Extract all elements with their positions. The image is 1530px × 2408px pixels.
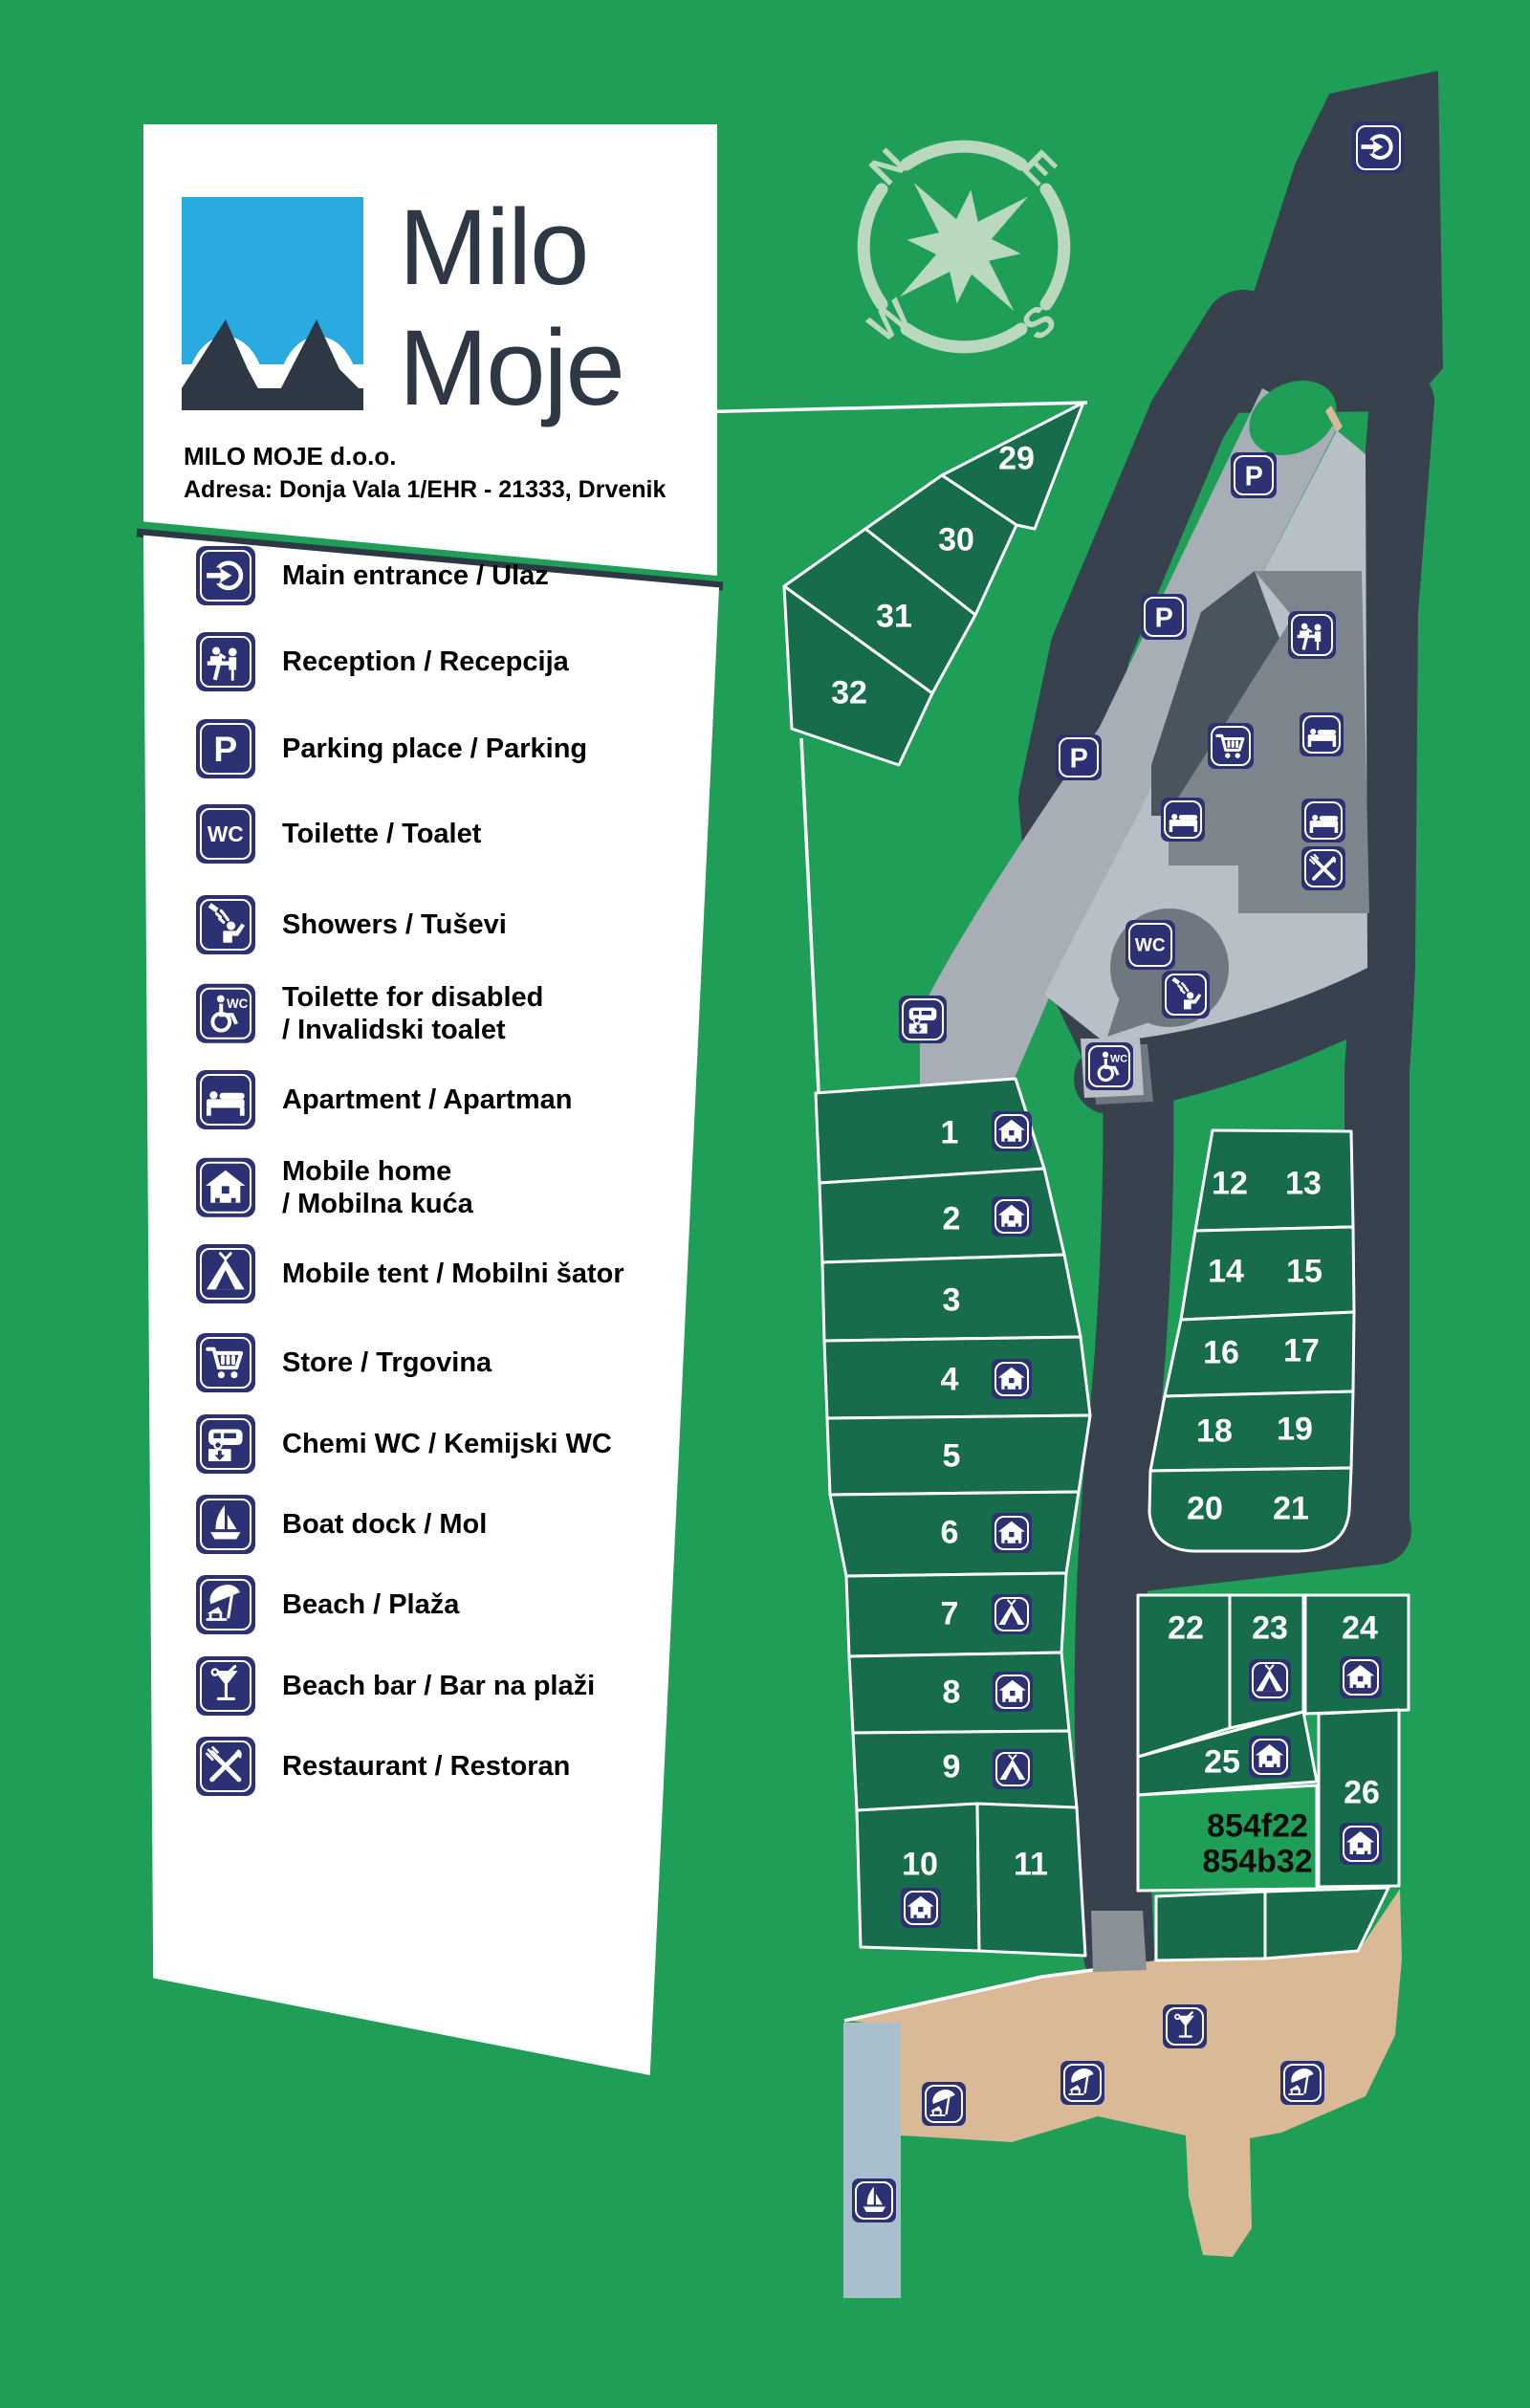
bed-icon <box>1300 712 1344 756</box>
legend-item: Chemi WC / Kemijski WC <box>196 1414 655 1474</box>
plot-label: 17 <box>1283 1333 1320 1370</box>
disabled-wc-icon <box>196 984 255 1043</box>
umbrella-icon <box>1280 2061 1324 2105</box>
plot-label: 18 <box>1196 1413 1233 1451</box>
cocktail-icon <box>1163 2004 1207 2048</box>
legend-item: Boat dock / Mol <box>196 1495 655 1554</box>
plot-label: 5 <box>943 1438 961 1476</box>
shower-icon <box>196 895 255 954</box>
umbrella-icon <box>922 2082 966 2126</box>
plot-label: 22 <box>1168 1610 1204 1648</box>
plot-label: 32 <box>831 675 867 712</box>
legend-item-label: Beach / Plaža <box>282 1588 459 1621</box>
bed-icon <box>1301 799 1345 843</box>
legend-item-label: Toilette for disabled / Invalidski toale… <box>282 981 543 1046</box>
home-icon <box>992 1196 1032 1237</box>
umbrella-icon <box>196 1575 255 1634</box>
boat-pier <box>843 2023 901 2298</box>
legend-item: Reception / Recepcija <box>196 632 655 691</box>
plot-label: 8 <box>943 1675 961 1712</box>
legend-item-label: Parking place / Parking <box>282 733 587 765</box>
reception-icon <box>196 632 255 691</box>
restaurant-icon <box>196 1737 255 1796</box>
plot-label: 3 <box>943 1282 961 1320</box>
plot-label: 20 <box>1187 1491 1223 1528</box>
legend-item-label: Restaurant / Restoran <box>282 1750 570 1783</box>
legend-item-label: Toilette / Toalet <box>282 818 481 850</box>
logo-wordmark: Milo Moje <box>399 187 623 428</box>
home-icon <box>992 1513 1032 1553</box>
plot-label: 31 <box>876 599 912 636</box>
plot-label: 4 <box>941 1362 959 1399</box>
legend-item-label: Chemi WC / Kemijski WC <box>282 1428 612 1460</box>
legend-item-label: Store / Trgovina <box>282 1346 492 1379</box>
plot-label: 16 <box>1203 1335 1239 1372</box>
legend-item-label: Apartment / Apartman <box>282 1084 572 1116</box>
wc-icon <box>1126 920 1175 970</box>
wc-icon <box>196 804 255 864</box>
plot-label: 19 <box>1277 1412 1313 1449</box>
plot-label: 23 <box>1252 1610 1288 1648</box>
home-icon <box>993 1672 1033 1712</box>
plot-label: 12 <box>1212 1166 1248 1203</box>
cart-icon <box>196 1333 255 1392</box>
bed-icon <box>1161 798 1205 842</box>
tent-icon <box>992 1594 1032 1634</box>
plot-label: 24 <box>1342 1610 1378 1648</box>
plot-label: 2 <box>943 1201 961 1238</box>
legend-item: Apartment / Apartman <box>196 1070 655 1129</box>
logo-word-line2: Moje <box>399 308 623 427</box>
tent-icon <box>993 1749 1033 1789</box>
plot-label: 7 <box>941 1596 959 1633</box>
legend-item-label: Boat dock / Mol <box>282 1508 487 1541</box>
cart-icon <box>1208 723 1254 769</box>
legend-item-label: Beach bar / Bar na plaži <box>282 1670 595 1702</box>
legend-item: Main entrance / Ulaz <box>196 546 655 605</box>
entrance-icon <box>1352 121 1404 173</box>
boat-icon <box>852 2178 896 2222</box>
entrance-icon <box>196 546 255 605</box>
parking-icon <box>1231 452 1277 498</box>
tent-icon <box>1249 1659 1291 1701</box>
plot-label: 10 <box>902 1847 938 1884</box>
home-icon <box>992 1111 1032 1151</box>
plot-label: 21 <box>1273 1491 1309 1528</box>
legend-item: Toilette for disabled / Invalidski toale… <box>196 981 655 1046</box>
company-name: MILO MOJE d.o.o. <box>184 442 396 471</box>
legend-item-label: Mobile home / Mobilna kuća <box>282 1155 473 1220</box>
parking-icon <box>196 719 255 778</box>
legend-item: Beach / Plaža <box>196 1575 655 1634</box>
logo-word-line1: Milo <box>399 187 587 307</box>
legend-item: Showers / Tuševi <box>196 895 655 954</box>
legend-item: Store / Trgovina <box>196 1333 655 1392</box>
home-icon <box>992 1359 1032 1399</box>
plot-label: 30 <box>938 522 974 559</box>
boat-icon <box>196 1495 255 1554</box>
cocktail-icon <box>196 1656 255 1716</box>
plot-label: 26 <box>1344 1775 1380 1812</box>
legend-item-label: Reception / Recepcija <box>282 646 569 678</box>
legend-item: Toilette / Toalet <box>196 804 655 864</box>
plot-label: 29 <box>998 441 1035 478</box>
plot-label: 15 <box>1286 1254 1322 1291</box>
road-end-stub <box>1091 1911 1147 1972</box>
plot-label: 25 <box>1204 1744 1240 1782</box>
disabled-wc-icon <box>1085 1042 1133 1090</box>
legend-item: Beach bar / Bar na plaži <box>196 1656 655 1716</box>
home-icon <box>196 1158 255 1217</box>
legend-item: Mobile home / Mobilna kuća <box>196 1155 655 1220</box>
legend-item: Mobile tent / Mobilni šator <box>196 1244 655 1303</box>
plot-label: 1 <box>941 1115 959 1152</box>
plot-label: 9 <box>943 1749 961 1786</box>
caravan-icon <box>196 1414 255 1474</box>
plot-label: 14 <box>1208 1254 1244 1291</box>
tent-icon <box>196 1244 255 1303</box>
campsite-map-page: Milo Moje MILO MOJE d.o.o. Adresa: Donja… <box>0 0 1530 2408</box>
bed-icon <box>196 1070 255 1129</box>
home-icon <box>901 1888 941 1928</box>
parking-icon <box>1141 594 1187 640</box>
legend-item-label: Showers / Tuševi <box>282 908 507 941</box>
plot-label: 11 <box>1014 1847 1048 1884</box>
plot-code-watermark: 854f22 854b32 <box>1202 1808 1312 1878</box>
legend-item: Parking place / Parking <box>196 719 655 778</box>
plot-label: 13 <box>1285 1166 1322 1203</box>
legend-item: Restaurant / Restoran <box>196 1737 655 1796</box>
home-icon <box>1249 1736 1291 1778</box>
plot-label: 6 <box>941 1515 959 1552</box>
parking-icon <box>1056 734 1102 780</box>
caravan-icon <box>899 996 947 1043</box>
umbrella-icon <box>1060 2061 1104 2105</box>
restaurant-icon <box>1301 846 1345 890</box>
home-icon <box>1340 1656 1382 1698</box>
company-address: Adresa: Donja Vala 1/EHR - 21333, Drveni… <box>184 476 666 504</box>
home-icon <box>1340 1823 1382 1865</box>
reception-icon <box>1288 611 1336 659</box>
shower-icon <box>1162 971 1210 1018</box>
legend-item-label: Main entrance / Ulaz <box>282 559 549 592</box>
legend-item-label: Mobile tent / Mobilni šator <box>282 1258 624 1290</box>
milo-moje-logo-icon <box>182 197 363 410</box>
